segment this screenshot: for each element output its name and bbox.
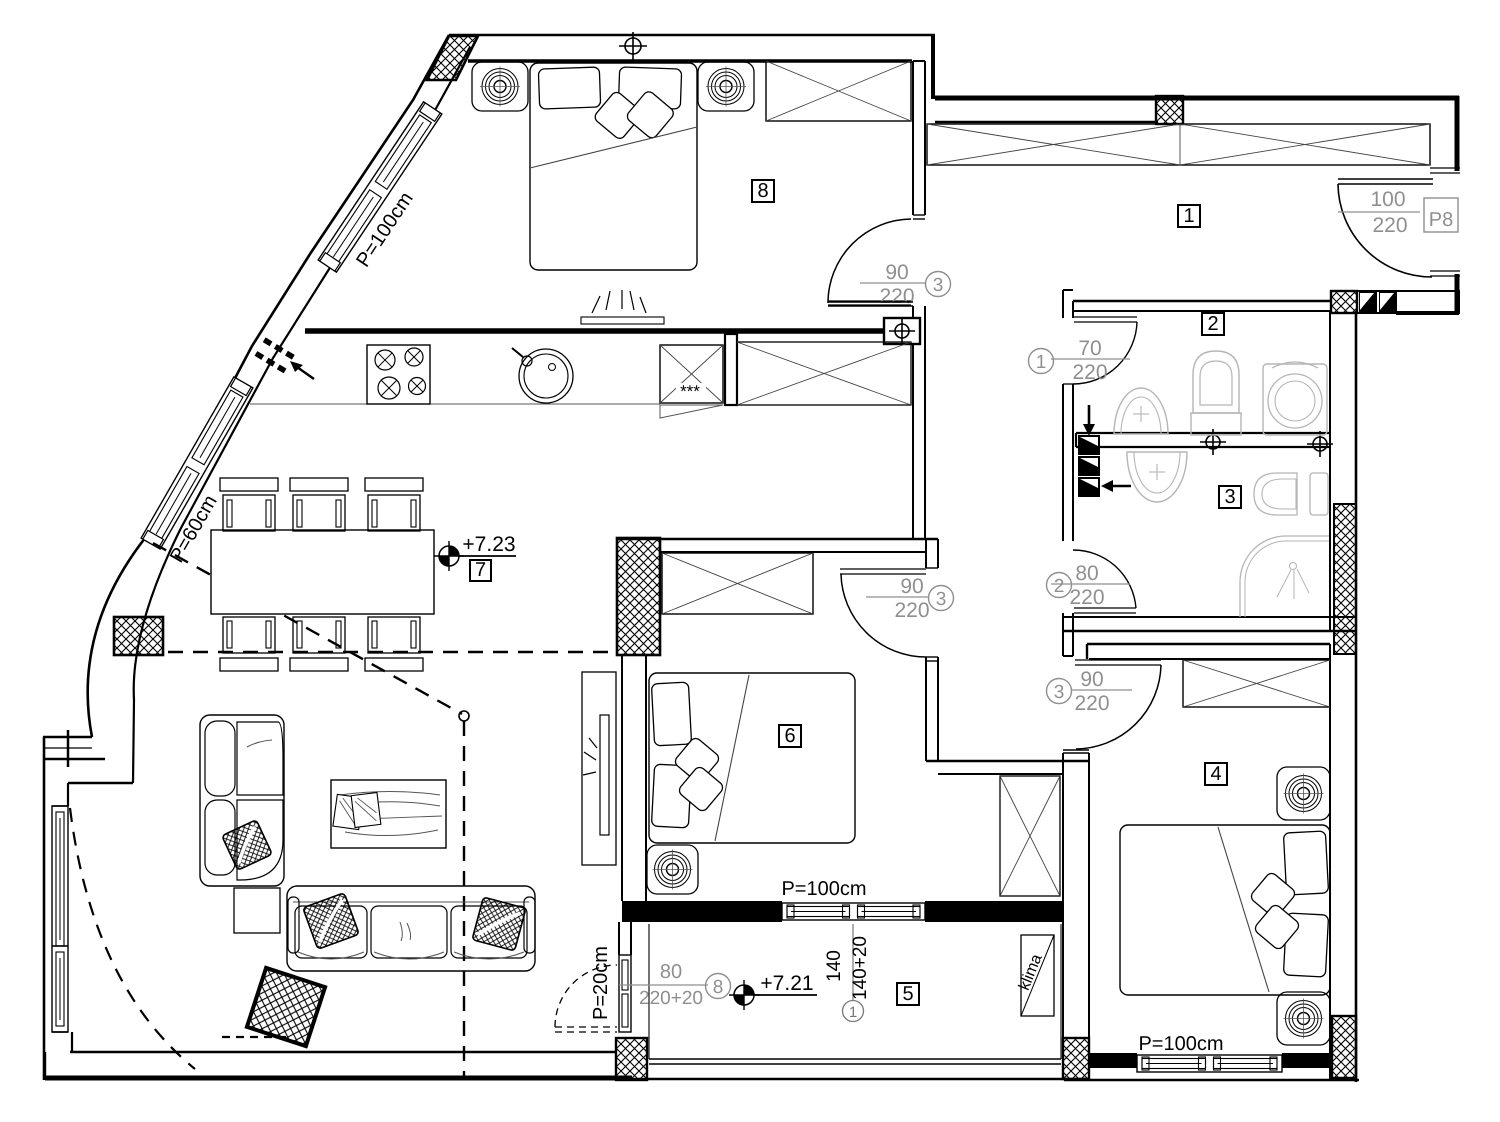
svg-text:4: 4: [1210, 763, 1221, 785]
svg-text:3: 3: [1054, 682, 1065, 703]
svg-text:5: 5: [902, 983, 913, 1005]
svg-text:220: 220: [1072, 361, 1107, 384]
svg-text:220: 220: [894, 599, 929, 622]
svg-text:220: 220: [1074, 692, 1109, 715]
svg-text:***: ***: [680, 382, 700, 401]
svg-text:90: 90: [1080, 668, 1103, 691]
svg-text:1: 1: [849, 1004, 857, 1021]
svg-text:+7.21: +7.21: [760, 972, 813, 995]
svg-text:100: 100: [1370, 188, 1405, 211]
svg-text:P8: P8: [1429, 209, 1453, 231]
svg-text:1: 1: [1036, 352, 1047, 373]
svg-text:3: 3: [933, 275, 944, 296]
svg-text:P=100cm: P=100cm: [781, 878, 866, 900]
svg-text:220: 220: [1372, 214, 1407, 237]
svg-text:3: 3: [936, 589, 947, 610]
svg-text:P=20cm: P=20cm: [590, 946, 612, 1020]
svg-text:220: 220: [879, 285, 914, 308]
svg-text:220+20: 220+20: [639, 988, 703, 1009]
svg-text:+7.23: +7.23: [462, 533, 515, 556]
svg-text:90: 90: [885, 261, 908, 284]
svg-text:2: 2: [1207, 313, 1218, 335]
svg-text:6: 6: [784, 725, 795, 747]
svg-text:7: 7: [475, 559, 486, 581]
svg-text:140+20: 140+20: [850, 936, 871, 1000]
svg-text:1: 1: [1183, 205, 1194, 227]
svg-text:220: 220: [1069, 586, 1104, 609]
svg-text:8: 8: [757, 180, 768, 202]
svg-text:70: 70: [1078, 337, 1101, 360]
svg-text:80: 80: [1075, 562, 1098, 585]
svg-text:8: 8: [713, 977, 724, 998]
svg-text:140: 140: [824, 950, 845, 982]
svg-text:P=100cm: P=100cm: [1138, 1033, 1223, 1055]
svg-text:90: 90: [900, 575, 923, 598]
svg-text:2: 2: [1054, 576, 1065, 597]
svg-text:80: 80: [660, 961, 682, 983]
svg-text:3: 3: [1224, 486, 1235, 508]
